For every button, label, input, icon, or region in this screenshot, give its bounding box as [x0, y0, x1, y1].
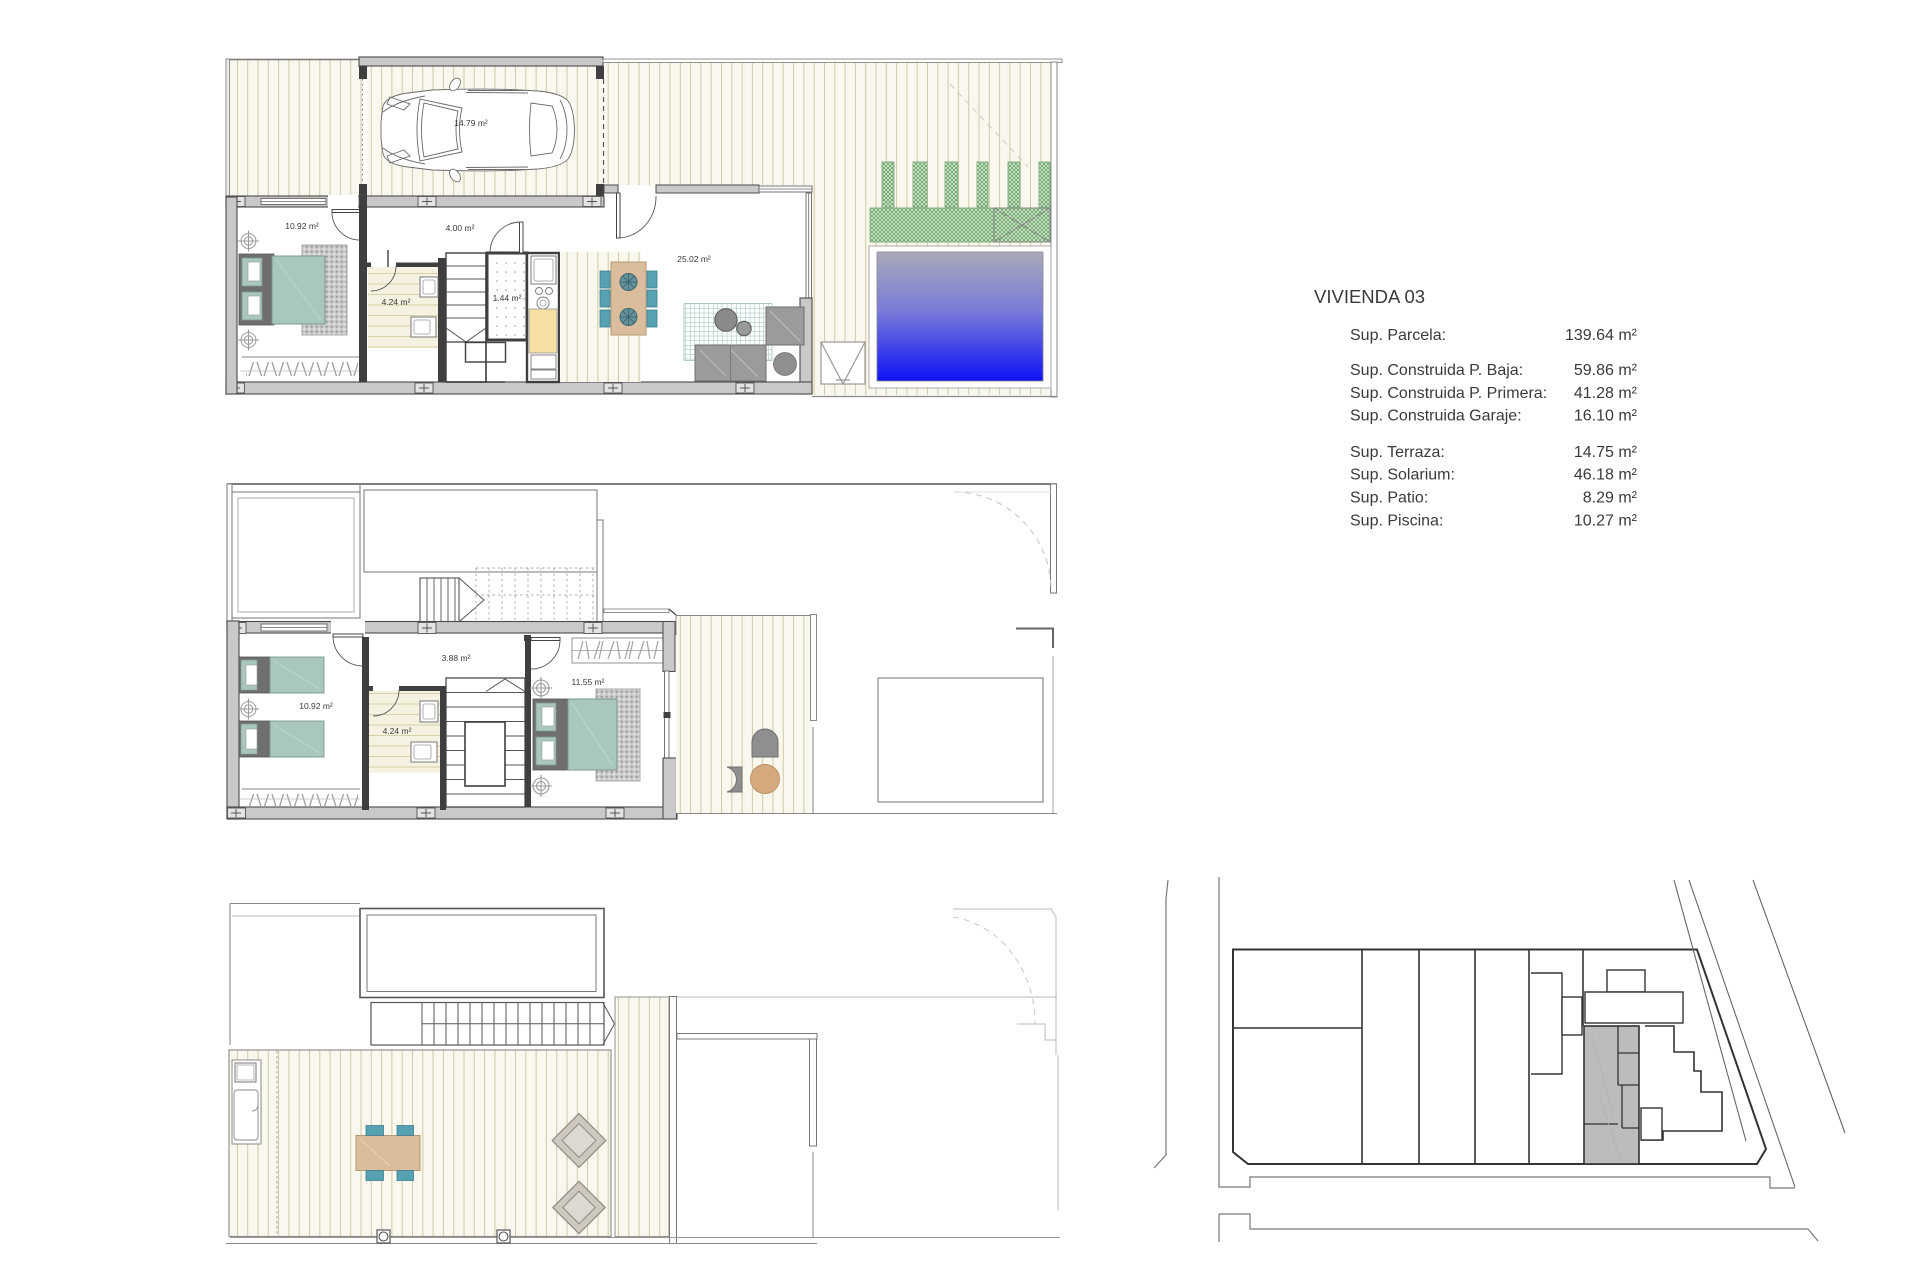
- svg-text:Sup. Construida P. Baja:: Sup. Construida P. Baja:: [1350, 362, 1523, 379]
- svg-text:Sup. Construida Garaje:: Sup. Construida Garaje:: [1350, 408, 1522, 425]
- svg-text:14.75 m²: 14.75 m²: [1574, 444, 1638, 461]
- svg-text:4.24 m²: 4.24 m²: [382, 297, 411, 307]
- svg-text:Sup. Terraza:: Sup. Terraza:: [1350, 444, 1445, 461]
- svg-text:1.44 m²: 1.44 m²: [493, 293, 522, 303]
- svg-text:11.55 m²: 11.55 m²: [572, 677, 605, 687]
- svg-text:Sup. Construida P. Primera:: Sup. Construida P. Primera:: [1350, 385, 1547, 402]
- svg-text:Sup. Parcela:: Sup. Parcela:: [1350, 327, 1446, 344]
- svg-text:10.92 m²: 10.92 m²: [299, 701, 333, 711]
- svg-text:4.00 m²: 4.00 m²: [446, 223, 475, 233]
- svg-text:25.02 m²: 25.02 m²: [677, 254, 711, 264]
- svg-text:10.27 m²: 10.27 m²: [1574, 513, 1638, 530]
- svg-text:41.28 m²: 41.28 m²: [1574, 385, 1638, 402]
- svg-text:16.10 m²: 16.10 m²: [1574, 408, 1638, 425]
- svg-text:46.18 m²: 46.18 m²: [1574, 467, 1638, 484]
- svg-text:Sup. Solarium:: Sup. Solarium:: [1350, 467, 1455, 484]
- svg-text:10.92 m²: 10.92 m²: [285, 221, 319, 231]
- svg-text:VIVIENDA 03: VIVIENDA 03: [1314, 286, 1425, 307]
- svg-text:3.88 m²: 3.88 m²: [442, 653, 471, 663]
- svg-text:59.86 m²: 59.86 m²: [1574, 362, 1638, 379]
- svg-text:8.29 m²: 8.29 m²: [1583, 490, 1638, 507]
- svg-text:14.79 m²: 14.79 m²: [454, 118, 488, 128]
- svg-text:139.64 m²: 139.64 m²: [1565, 327, 1638, 344]
- svg-text:Sup. Piscina:: Sup. Piscina:: [1350, 513, 1443, 530]
- svg-text:Sup. Patio:: Sup. Patio:: [1350, 490, 1428, 507]
- svg-text:4.24 m²: 4.24 m²: [383, 726, 412, 736]
